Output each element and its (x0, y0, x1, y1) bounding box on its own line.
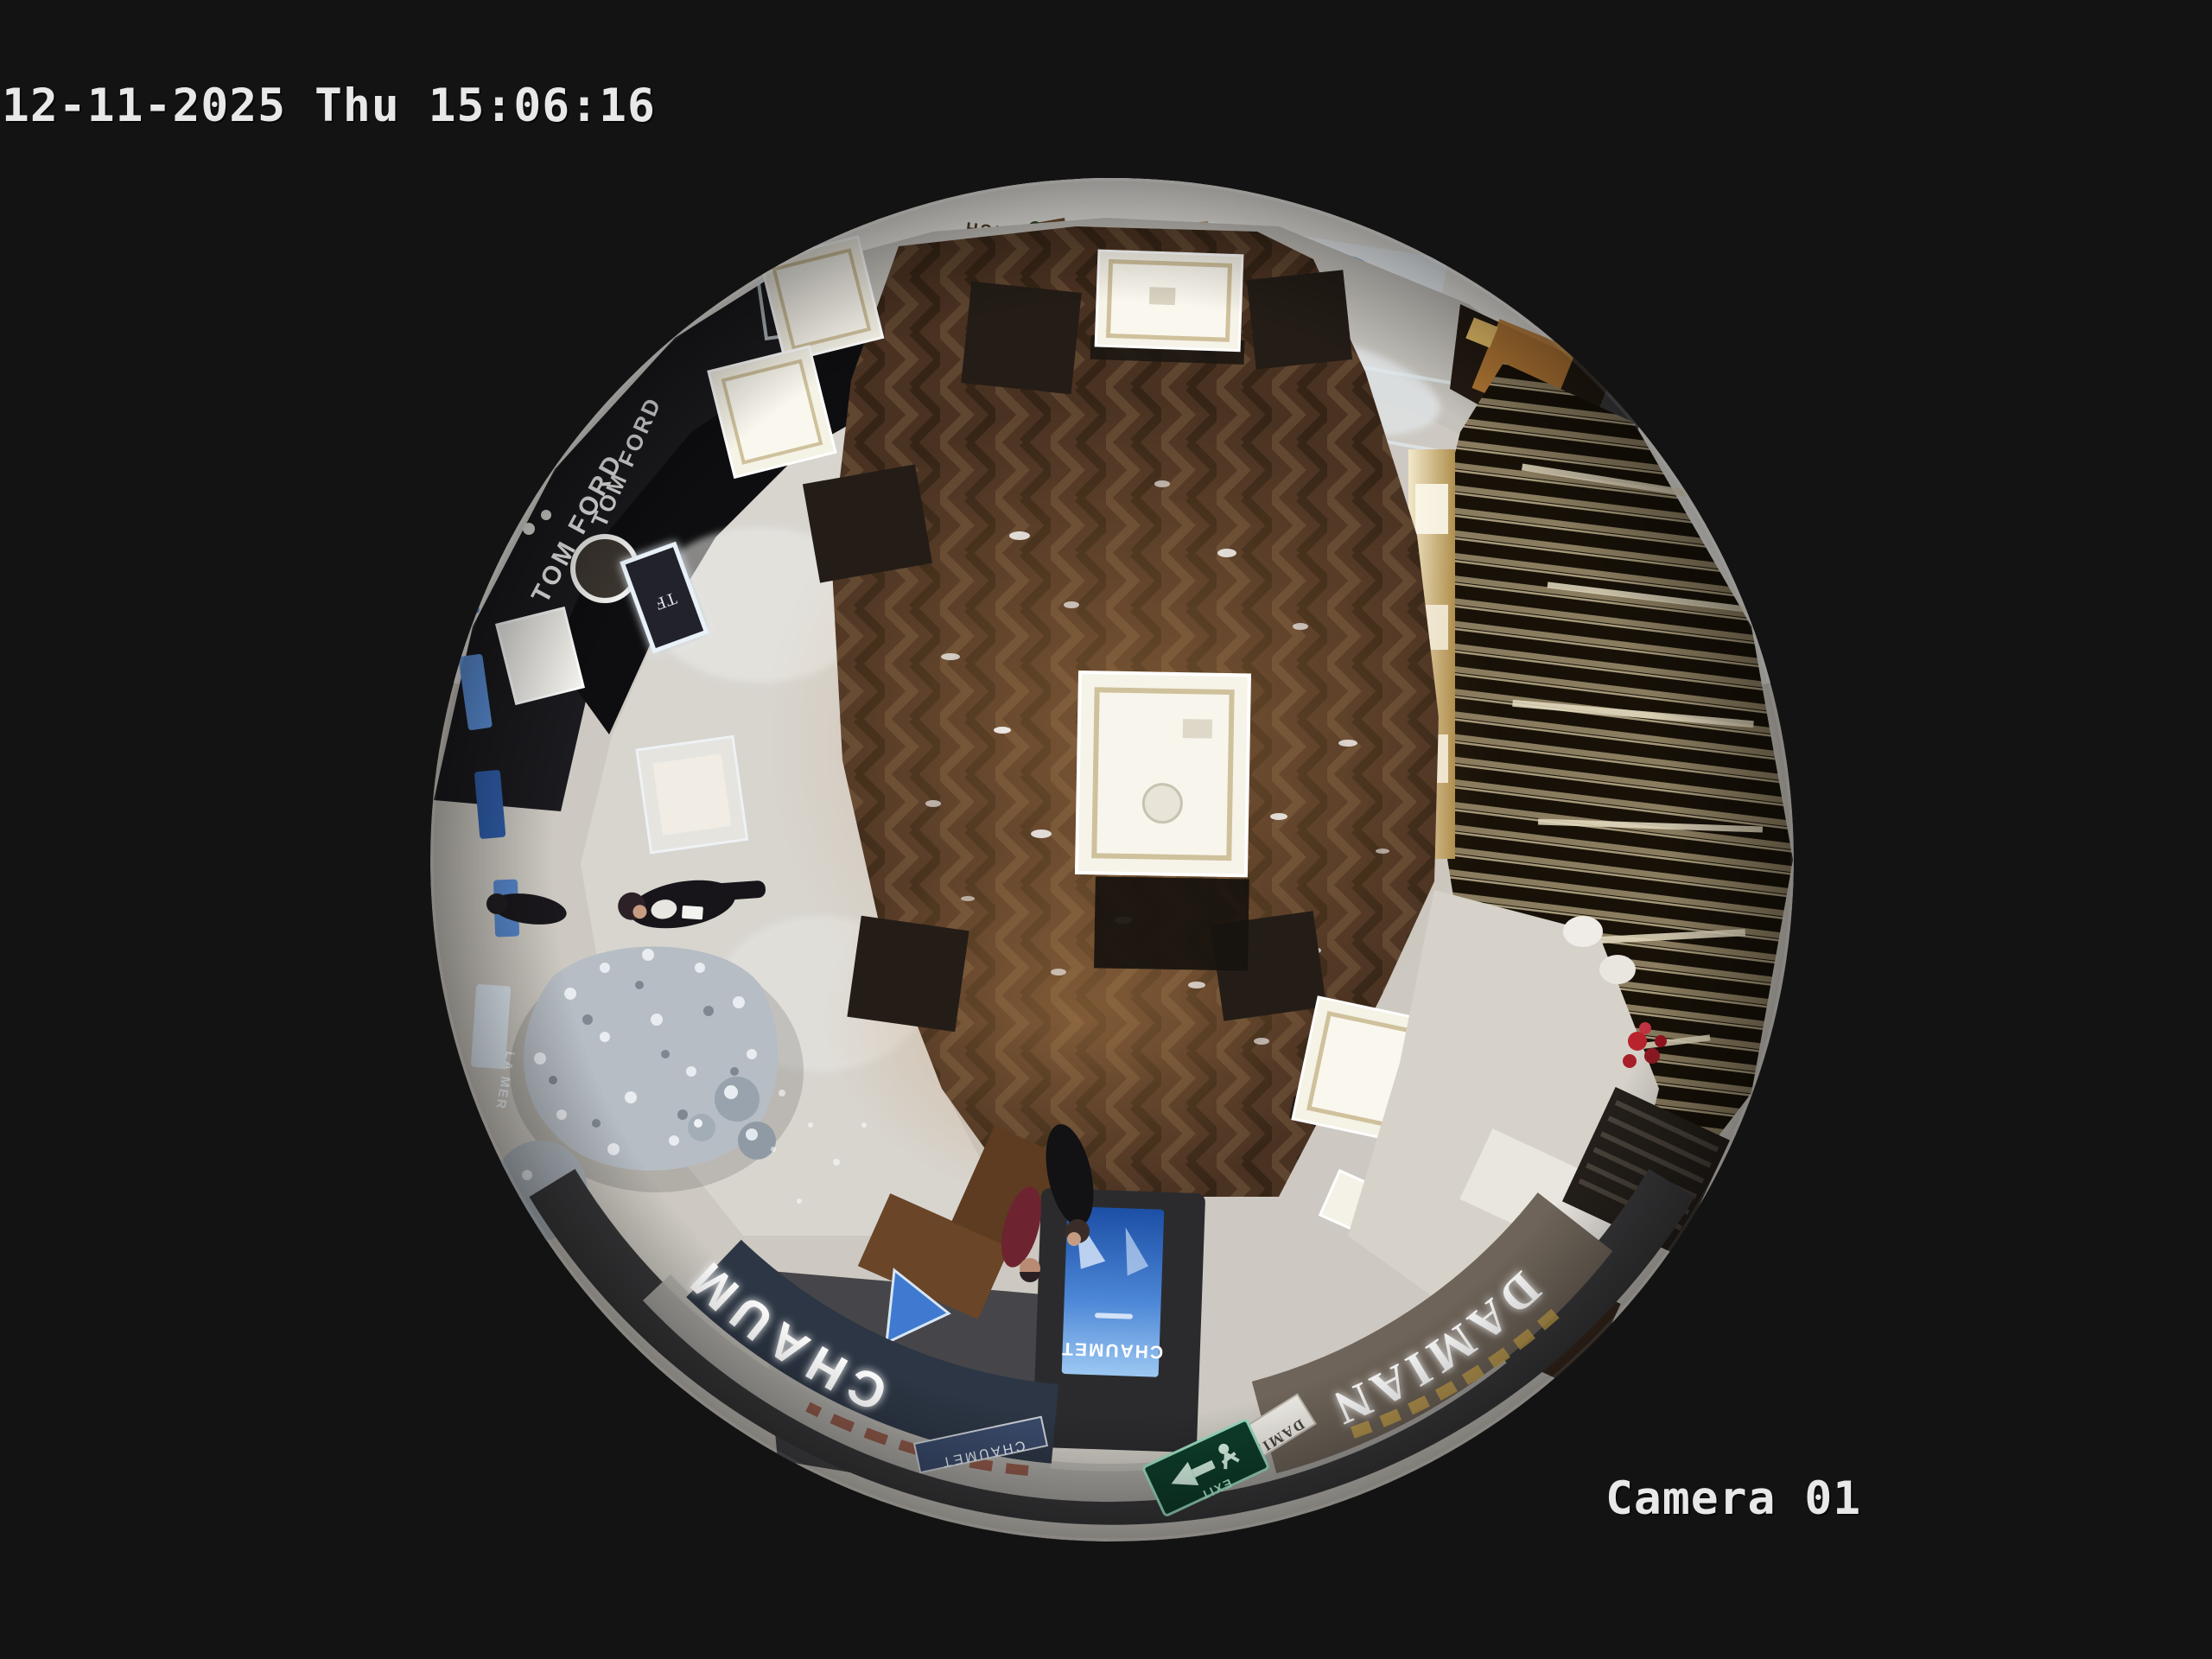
fisheye-view: LA MER KORICH (0, 0, 2212, 1659)
osd-timestamp: 12-11-2025 Thu 15:06:16 (2, 83, 656, 129)
lens-vignette (430, 178, 1794, 1541)
osd-camera-label: Camera 01 (1605, 1476, 1861, 1522)
cctv-frame: LA MER KORICH (0, 0, 2212, 1659)
